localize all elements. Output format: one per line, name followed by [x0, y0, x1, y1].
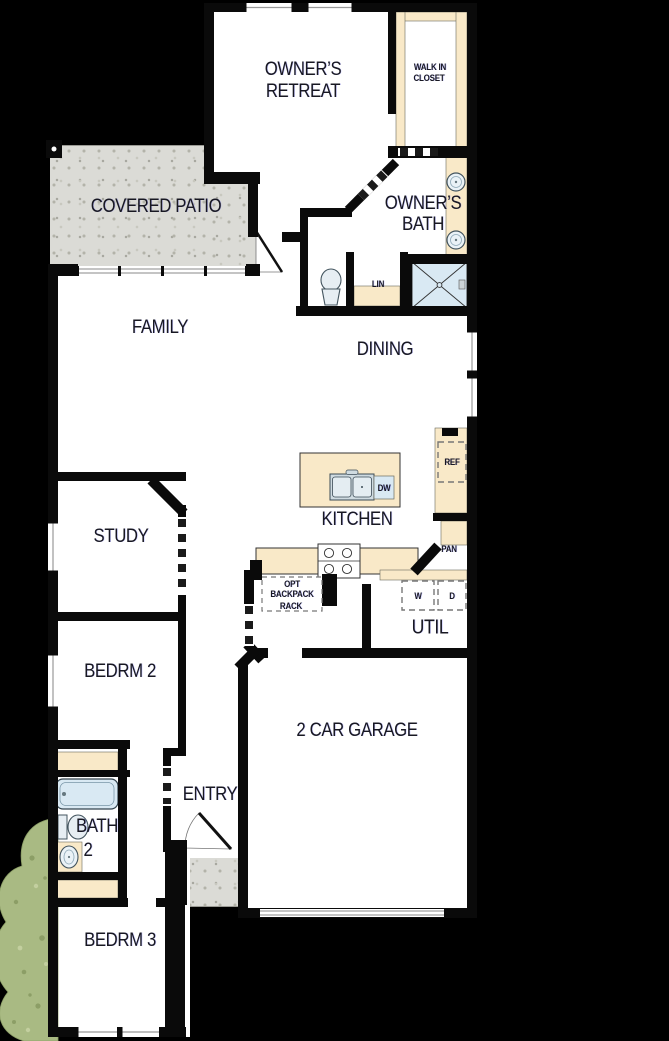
wic-shelf-right — [456, 12, 467, 150]
sliding-glass-door — [76, 266, 248, 276]
window — [48, 521, 58, 573]
kitchen-sink-icon — [330, 470, 374, 500]
linen-shelf — [354, 286, 400, 306]
dishwasher-icon — [374, 476, 394, 499]
cased-opening — [178, 517, 186, 595]
toilet-icon — [58, 815, 88, 839]
refrigerator-recess — [435, 428, 467, 513]
plan-linework — [0, 0, 669, 1041]
window — [467, 330, 477, 373]
bedroom3-closet-shelf — [56, 880, 118, 898]
bath-sink-icon — [60, 846, 78, 868]
bath-sink-icon — [447, 231, 465, 249]
cased-opening — [244, 604, 254, 646]
bath-sink-icon — [447, 173, 465, 191]
window — [306, 3, 354, 12]
window — [467, 376, 477, 419]
bedroom3-door-opening — [128, 898, 156, 907]
utility-shelf — [380, 570, 467, 580]
toilet-icon — [321, 269, 341, 305]
cased-opening — [163, 766, 171, 806]
pantry-shelf — [441, 521, 467, 545]
bathtub-icon — [56, 779, 118, 809]
window — [120, 1027, 162, 1037]
wic-shelf-left — [396, 12, 405, 150]
floor-plan: OWNER’S RETREAT WALK IN CLOSET COVERED P… — [0, 0, 669, 1041]
cased-opening — [398, 148, 438, 156]
shower-icon — [412, 262, 467, 308]
window — [244, 3, 294, 12]
window — [76, 1027, 120, 1037]
backpack-rack-icon — [262, 577, 322, 611]
window — [48, 653, 58, 709]
bedroom2-closet-shelf — [56, 752, 118, 772]
garage-entry-opening — [268, 648, 302, 658]
range-icon — [318, 544, 360, 578]
garage-door — [257, 908, 447, 918]
